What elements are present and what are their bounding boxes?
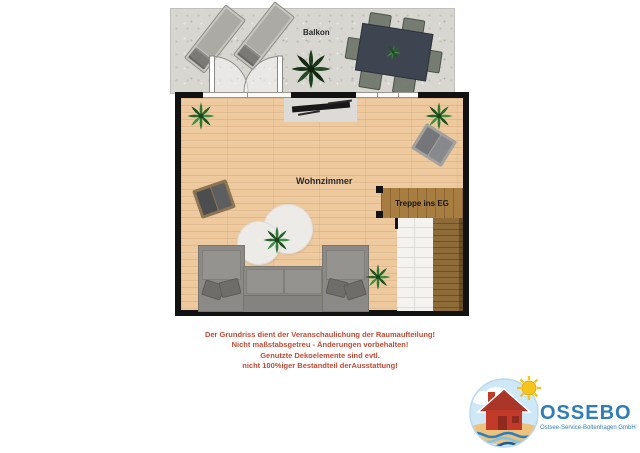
sofa-section-right xyxy=(322,245,369,312)
sofa-cushion xyxy=(326,250,365,280)
wall-post xyxy=(376,211,383,218)
door-leaf xyxy=(210,56,215,93)
company-logo: OSSEBO Ostsee-Service-Boltenhagen GmbH xyxy=(468,376,638,450)
disclaimer-line: Der Grundriss dient der Veranschaulichun… xyxy=(0,330,640,340)
balcony-plant-icon xyxy=(288,46,334,92)
table-plant-icon xyxy=(383,42,404,63)
dining-table-group xyxy=(343,9,443,96)
sofa-seat xyxy=(244,295,323,312)
stairs-open-area xyxy=(397,218,433,311)
logo-emblem xyxy=(468,376,544,450)
door-leaf xyxy=(278,56,283,93)
balcony-label: Balkon xyxy=(303,28,330,37)
stairs-treads xyxy=(433,218,463,311)
sofa-section-left xyxy=(198,245,245,312)
corner-plant-icon xyxy=(185,100,217,132)
logo-tagline: Ostsee-Service-Boltenhagen GmbH xyxy=(540,425,636,431)
sofa-cushion xyxy=(202,250,241,280)
rug-plant-icon xyxy=(261,224,293,256)
living-room-label: Wohnzimmer xyxy=(296,176,352,186)
floor-plant-icon xyxy=(363,262,393,292)
door-opening xyxy=(203,92,291,98)
sofa-pillow xyxy=(218,278,241,298)
disclaimer-line: nicht 100%iger Bestandteil derAusstattun… xyxy=(0,361,640,371)
stairs-grid-line xyxy=(414,218,415,311)
window-divider xyxy=(398,93,399,97)
stairs-landing: Treppe ins EG xyxy=(381,188,463,218)
stairs-label: Treppe ins EG xyxy=(395,199,449,208)
disclaimer-line: Genutzte Dekoelemente sind evtl. xyxy=(0,351,640,361)
disclaimer-text: Der Grundriss dient der Veranschaulichun… xyxy=(0,330,640,372)
sofa-cushion xyxy=(246,269,284,294)
floorplan-page: Balkon Wohnzimmer xyxy=(0,0,640,453)
sofa-section-middle xyxy=(243,266,324,312)
disclaimer-line: Nicht maßstabsgetreu - Änderungen vorbeh… xyxy=(0,340,640,350)
wall-post xyxy=(376,186,383,193)
wall-stub xyxy=(395,218,398,229)
window xyxy=(356,92,418,98)
window-divider xyxy=(377,93,378,97)
french-door xyxy=(200,54,292,94)
logo-name: OSSEBO xyxy=(540,402,636,424)
sofa-cushion xyxy=(284,269,322,294)
sun-icon xyxy=(517,376,541,400)
door-divider xyxy=(247,93,248,97)
